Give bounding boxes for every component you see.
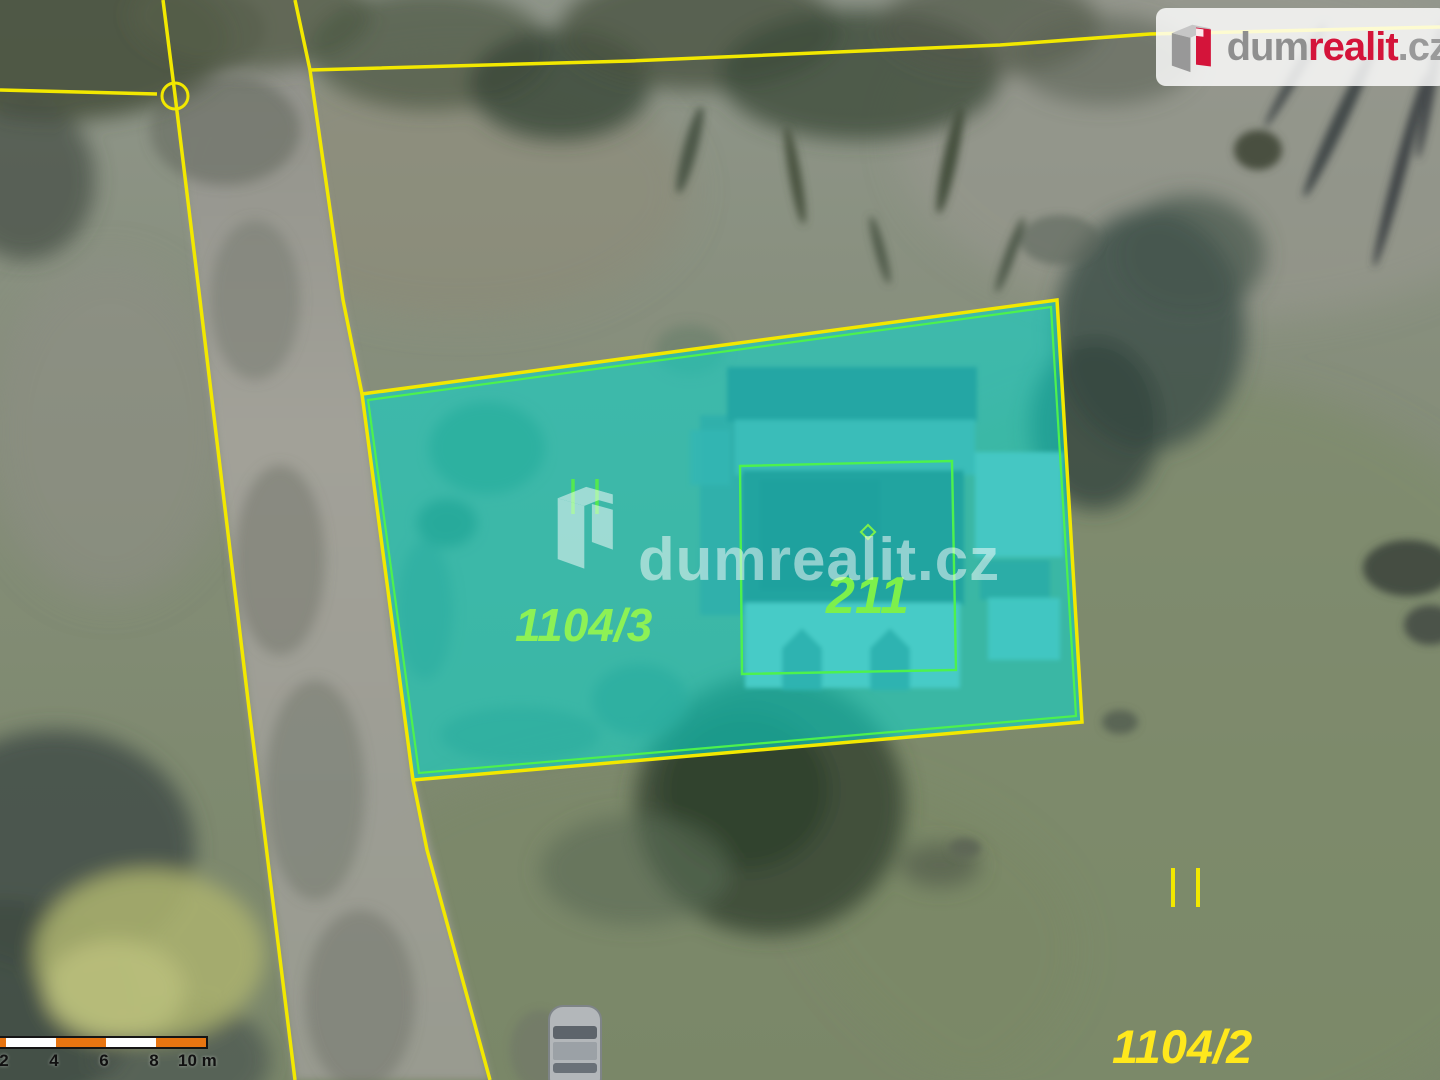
scale-label: 2	[0, 1051, 9, 1071]
aerial-map: 1104/3 211 1104/2 dumrealit.cz	[0, 0, 1440, 1080]
scale-segment	[156, 1038, 206, 1047]
scale-label: 6	[99, 1051, 108, 1071]
scale-segment	[106, 1038, 156, 1047]
watermark-text: dumrealit.cz	[638, 526, 1000, 593]
brand-logo-building-icon	[1170, 18, 1215, 76]
scale-label: 4	[49, 1051, 58, 1071]
map-canvas: 1104/3 211 1104/2 dumrealit.cz dumrealit…	[0, 0, 1440, 1080]
car	[510, 1006, 601, 1080]
scale-label: 8	[149, 1051, 158, 1071]
parcel-label-highlighted: 1104/3	[515, 599, 653, 651]
scale-label: 10 m	[178, 1051, 217, 1071]
scale-bar-segments	[0, 1036, 208, 1049]
scale-segment	[6, 1038, 56, 1047]
parcel-label-neighbor: 1104/2	[1112, 1020, 1252, 1073]
scale-segment	[56, 1038, 106, 1047]
brand-logo: dumrealit.cz	[1156, 8, 1440, 86]
brand-logo-text-suffix: .cz	[1398, 25, 1440, 69]
scale-bar: 2 4 6 8 10 m	[0, 1034, 260, 1080]
brand-logo-text-prefix: dum	[1227, 25, 1308, 69]
brand-logo-text-accent: realit	[1308, 25, 1398, 69]
brand-logo-text: dumrealit.cz	[1227, 25, 1440, 70]
